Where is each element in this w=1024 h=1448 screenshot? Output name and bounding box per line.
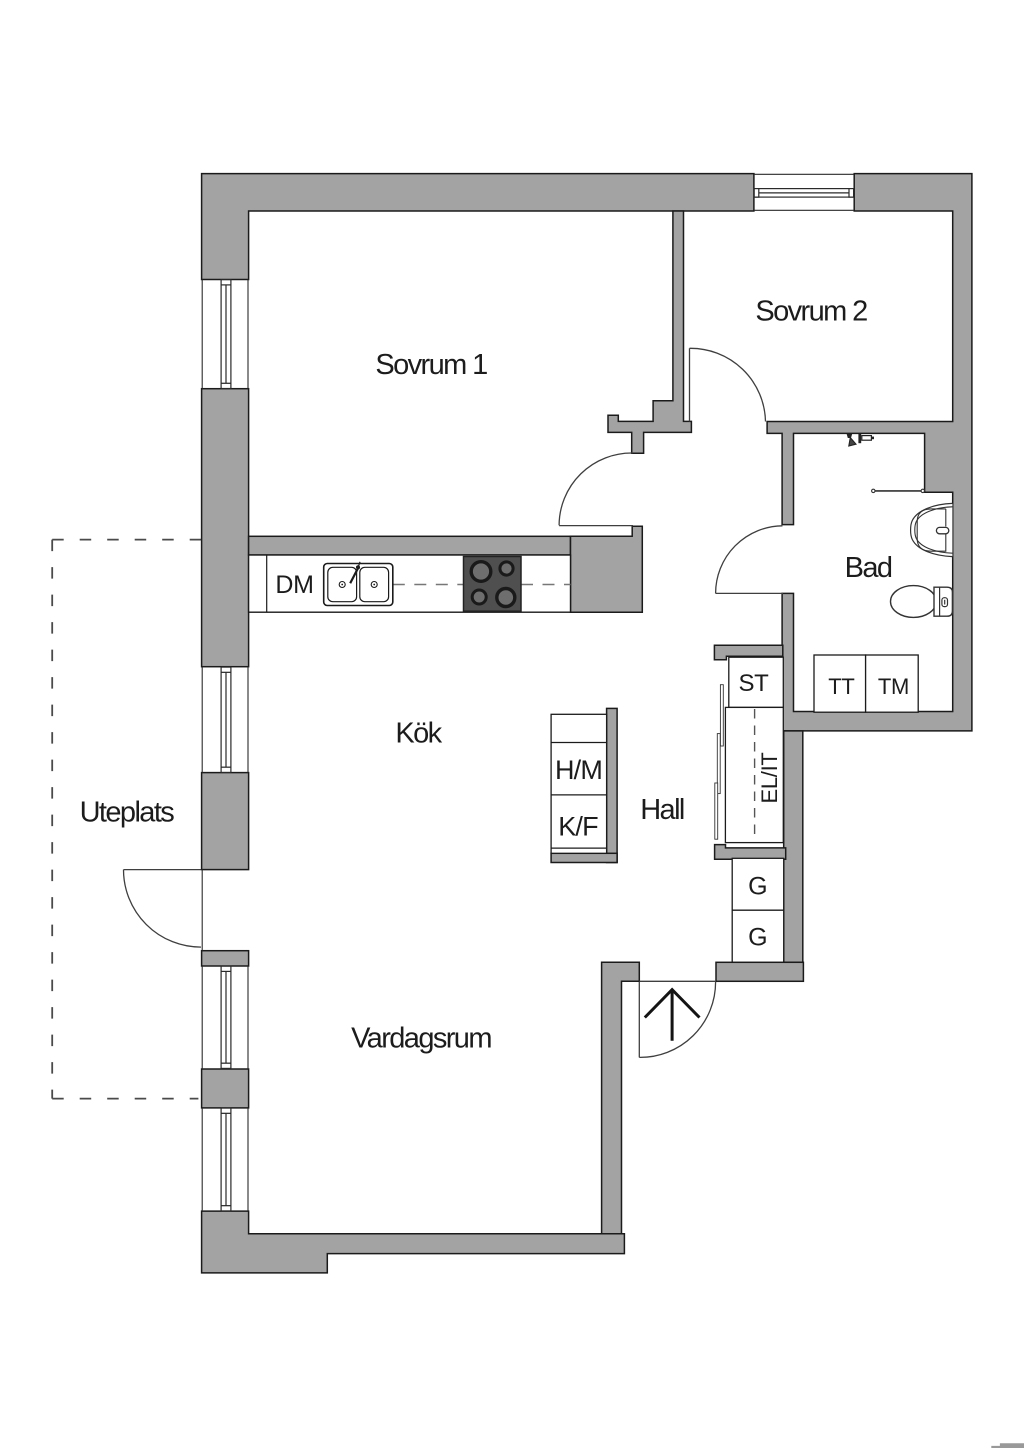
- svg-text:K/F: K/F: [558, 812, 598, 842]
- svg-text:TT: TT: [828, 674, 854, 699]
- svg-text:Sovrum 1: Sovrum 1: [375, 349, 487, 381]
- svg-text:Bad: Bad: [845, 552, 892, 584]
- svg-text:Uteplats: Uteplats: [80, 797, 175, 829]
- svg-text:Sovrum 2: Sovrum 2: [755, 296, 867, 328]
- svg-text:ST: ST: [738, 670, 769, 697]
- svg-text:Vardagsrum: Vardagsrum: [351, 1023, 491, 1055]
- svg-text:G: G: [748, 924, 767, 952]
- svg-text:Kök: Kök: [395, 718, 442, 750]
- svg-text:EL/IT: EL/IT: [757, 752, 782, 803]
- svg-text:TM: TM: [878, 674, 909, 699]
- svg-text:DM: DM: [275, 571, 313, 599]
- svg-text:G: G: [748, 873, 767, 901]
- svg-text:H/M: H/M: [555, 755, 602, 785]
- svg-text:Hall: Hall: [640, 794, 684, 826]
